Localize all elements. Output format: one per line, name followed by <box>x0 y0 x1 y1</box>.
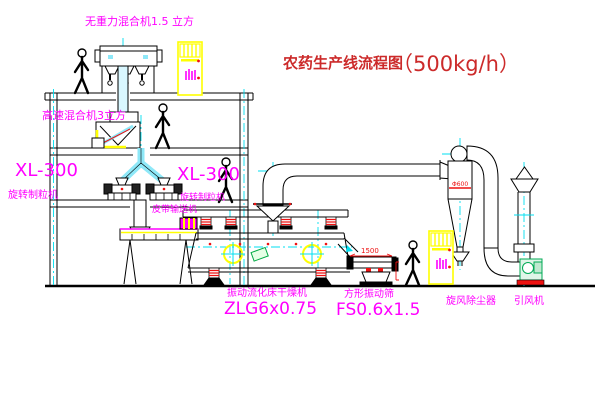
cyclone-separator-drawing <box>448 146 520 276</box>
induced-draft-fan-drawing <box>517 259 544 285</box>
y-chute-drawing <box>122 148 163 181</box>
person-icon <box>75 49 88 93</box>
control-cabinet-icon <box>178 42 202 95</box>
label-granulator-right-name: 旋转制粒机 <box>180 191 225 203</box>
label-granulator-right-model: XL-300 <box>177 164 240 185</box>
feed-chute-vertical <box>118 66 128 115</box>
dryer-nameplate <box>251 248 268 262</box>
label-screener-model: FS0.6x1.5 <box>336 300 420 320</box>
label-dryer-name: 振动流化床干燥机 <box>227 286 307 299</box>
floor-slab-middle <box>50 148 248 155</box>
vibration-motor-icon <box>221 242 324 266</box>
label-granulator-left-model: XL-300 <box>15 160 78 181</box>
label-screener-name: 方形振动筛 <box>344 287 394 300</box>
person-icon <box>156 104 169 148</box>
dimension-screen-length: 1500 <box>361 247 379 255</box>
label-high-speed-mixer: 高速混合机3立方 <box>42 108 126 122</box>
drawing-canvas: 农药生产线流程图 （500kg/h） 无重力混合机1.5 立方 高速混合机3立方… <box>0 0 600 403</box>
label-granulator-left-name: 旋转制粒机 <box>8 188 58 201</box>
dimension-cyclone-diameter: Φ600 <box>452 181 468 188</box>
diagram-title: 农药生产线流程图 <box>282 54 403 72</box>
label-gravity-mixer: 无重力混合机1.5 立方 <box>85 14 194 28</box>
label-dryer-model: ZLG6x0.75 <box>224 299 317 319</box>
vibrating-screen-drawing <box>338 238 399 286</box>
floor-slab-top <box>45 93 253 100</box>
label-belt-conveyor: 皮带输送机 <box>152 203 197 215</box>
person-icon <box>406 241 419 285</box>
control-cabinet-icon <box>429 231 453 284</box>
granulator-left-drawing <box>104 178 140 200</box>
label-fan: 引风机 <box>514 294 544 307</box>
diagram-capacity: （500kg/h） <box>392 52 520 76</box>
exhaust-stack-drawing <box>511 167 538 262</box>
label-cyclone: 旋风除尘器 <box>446 294 496 307</box>
fluid-bed-dryer-drawing <box>183 210 350 285</box>
cad-process-flow-diagram: 农药生产线流程图 （500kg/h） 无重力混合机1.5 立方 高速混合机3立方… <box>0 0 600 403</box>
